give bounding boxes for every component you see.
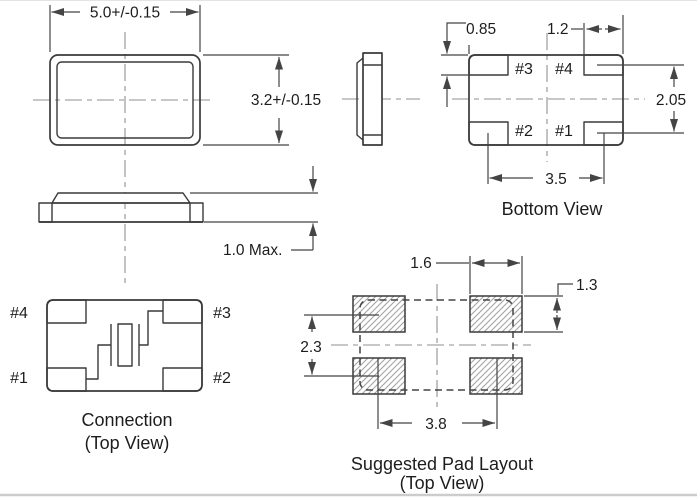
wire-to-pad-3 [139, 311, 163, 345]
land-pad-bottom-right [470, 358, 522, 394]
pin-label-2: #2 [213, 370, 231, 387]
pad-bottom-left [47, 368, 86, 391]
dim-max-height-text: 1.0 Max. [223, 242, 282, 259]
dim-col-pitch-text: 3.8 [425, 416, 447, 433]
dim-pad-width-text: 1.6 [410, 255, 432, 272]
pin-label-4: #4 [10, 305, 28, 322]
dim-pad-width-text: 1.2 [547, 21, 569, 38]
left-end-pad [39, 203, 52, 222]
dim-row-pitch-text: 2.3 [300, 339, 322, 356]
pad-top-right [163, 300, 202, 323]
dim-pad-height: 1.3 [524, 277, 598, 332]
pad-layout-subtitle: (Top View) [400, 473, 485, 493]
dim-col-pitch-text: 3.5 [545, 171, 567, 188]
leader-bracket [447, 23, 466, 31]
dim-pad-height-text: 0.85 [466, 21, 496, 38]
dim-max-height: 1.0 Max. [190, 166, 318, 259]
pad-layout-view: 1.6 1.3 2.3 3.8 Suggested Pad Lay [300, 255, 597, 493]
pad-top-left [469, 55, 508, 75]
dim-col-pitch: 3.5 [488, 133, 604, 188]
pad-label-1: #1 [555, 123, 573, 140]
pad-bottom-right [163, 368, 202, 391]
package-outline [47, 300, 202, 391]
drawing-canvas: 5.0+/-0.15 3.2+/-0.15 1.0 Max. [0, 0, 697, 499]
top-view: 5.0+/-0.15 3.2+/-0.15 [50, 5, 321, 146]
dim-pad-width: 1.6 [410, 255, 522, 294]
pin-label-3: #3 [213, 305, 231, 322]
land-pad-top-left [353, 296, 405, 332]
end-view [357, 53, 382, 145]
crystal-body [118, 324, 132, 366]
dim-height: 3.2+/-0.15 [203, 55, 321, 145]
pad-label-4: #4 [555, 61, 573, 78]
lid-profile [52, 193, 190, 203]
dim-height-text: 3.2+/-0.15 [251, 92, 321, 109]
pad-top-left [47, 300, 86, 323]
pad-layout-title: Suggested Pad Layout [351, 454, 533, 474]
dim-pad-width: 1.2 [547, 15, 623, 54]
package-outline [469, 55, 623, 145]
crystal-symbol [86, 311, 163, 379]
dim-row-pitch-text: 2.05 [656, 92, 686, 109]
pad-label-3: #3 [515, 61, 533, 78]
dim-width-text: 5.0+/-0.15 [90, 5, 160, 22]
bottom-view: #3 #4 #2 #1 0.85 1.2 2 [441, 15, 686, 219]
dimension-drawing-svg: 5.0+/-0.15 3.2+/-0.15 1.0 Max. [0, 0, 697, 499]
connection-view: #4 #3 #1 #2 Connection (Top View) [10, 300, 231, 453]
end-view-body [363, 53, 382, 145]
connection-title: Connection [81, 410, 172, 430]
wire-to-pad-1 [86, 345, 111, 379]
leader-bracket [558, 284, 573, 295]
side-view: 1.0 Max. [39, 166, 318, 259]
dim-pad-height-text: 1.3 [576, 277, 598, 294]
pin-label-1: #1 [10, 370, 28, 387]
pad-label-2: #2 [515, 123, 533, 140]
connection-subtitle: (Top View) [85, 433, 170, 453]
right-end-pad [190, 203, 203, 222]
bottom-view-title: Bottom View [502, 199, 604, 219]
land-pad-top-right [470, 296, 522, 332]
